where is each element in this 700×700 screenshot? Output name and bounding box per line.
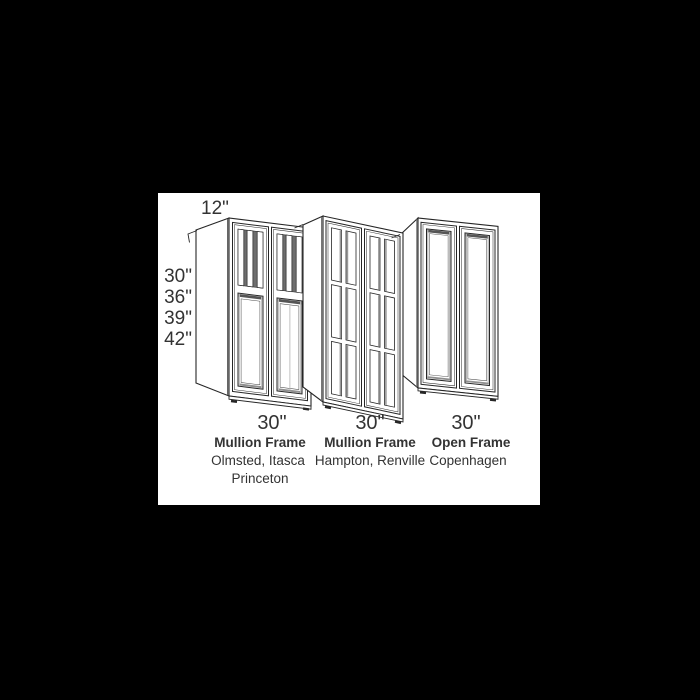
cabinet-1-style-names-line2: Princeton <box>231 471 288 486</box>
cabinet-open-frame <box>400 218 498 400</box>
cabinet-2-front-face <box>323 216 403 419</box>
cabinet-2-foot-left <box>325 407 331 408</box>
height-label-42: 42" <box>164 329 192 350</box>
depth-dimension-label: 12" <box>201 198 229 219</box>
cabinet-mullion-frame-2 <box>303 216 403 423</box>
width-dimension-labels: 30" 30" 30" <box>257 412 480 434</box>
cabinet-1-side-panel <box>196 218 229 396</box>
cabinet-1-frame-type: Mullion Frame <box>214 435 306 450</box>
cabinet-1-width-label: 30" <box>257 412 286 434</box>
cabinet-2-side-panel <box>303 216 323 402</box>
cabinet-3-foot-right <box>490 400 496 401</box>
cabinet-3-foot-left <box>420 392 426 393</box>
height-dimension-labels: 30" 36" 39" 42" <box>164 266 192 350</box>
cabinet-3-door-right <box>460 226 496 392</box>
frame-type-labels: Mullion Frame Mullion Frame Open Frame <box>214 435 511 450</box>
cabinet-3-front-face <box>418 218 498 396</box>
cabinet-2-door-right <box>365 229 401 415</box>
diagram-panel: 12" 30" 36" 39" 42" 30" 30" 30" Mullion … <box>158 193 540 505</box>
cabinet-3-door-left <box>421 222 457 388</box>
page-background: { "panel": { "page_background": "#000000… <box>0 0 700 700</box>
cabinet-3-style-names-line1: Copenhagen <box>429 453 506 468</box>
height-label-36: 36" <box>164 287 192 308</box>
height-label-39: 39" <box>164 308 192 329</box>
cabinet-2-door-left <box>326 221 362 407</box>
cabinet-1-foot-right <box>303 409 309 410</box>
height-label-30: 30" <box>164 266 192 287</box>
cabinet-2-style-names-line1: Hampton, Renville <box>315 453 425 468</box>
cabinet-1-foot-left <box>231 401 237 402</box>
style-name-labels: Olmsted, Itasca Princeton Hampton, Renvi… <box>211 453 507 486</box>
cabinet-3-width-label: 30" <box>451 412 480 434</box>
cabinet-mullion-frame-1 <box>196 218 311 409</box>
cabinet-1-door-left <box>233 222 269 395</box>
cabinet-3-frame-type: Open Frame <box>432 435 511 450</box>
cabinet-1-front-face <box>229 218 311 406</box>
cabinet-2-width-label: 30" <box>355 412 384 434</box>
cabinet-2-foot-right <box>395 422 401 423</box>
cabinet-diagram: 12" 30" 36" 39" 42" 30" 30" 30" Mullion … <box>158 193 540 505</box>
cabinet-2-frame-type: Mullion Frame <box>324 435 416 450</box>
cabinet-1-style-names-line1: Olmsted, Itasca <box>211 453 305 468</box>
